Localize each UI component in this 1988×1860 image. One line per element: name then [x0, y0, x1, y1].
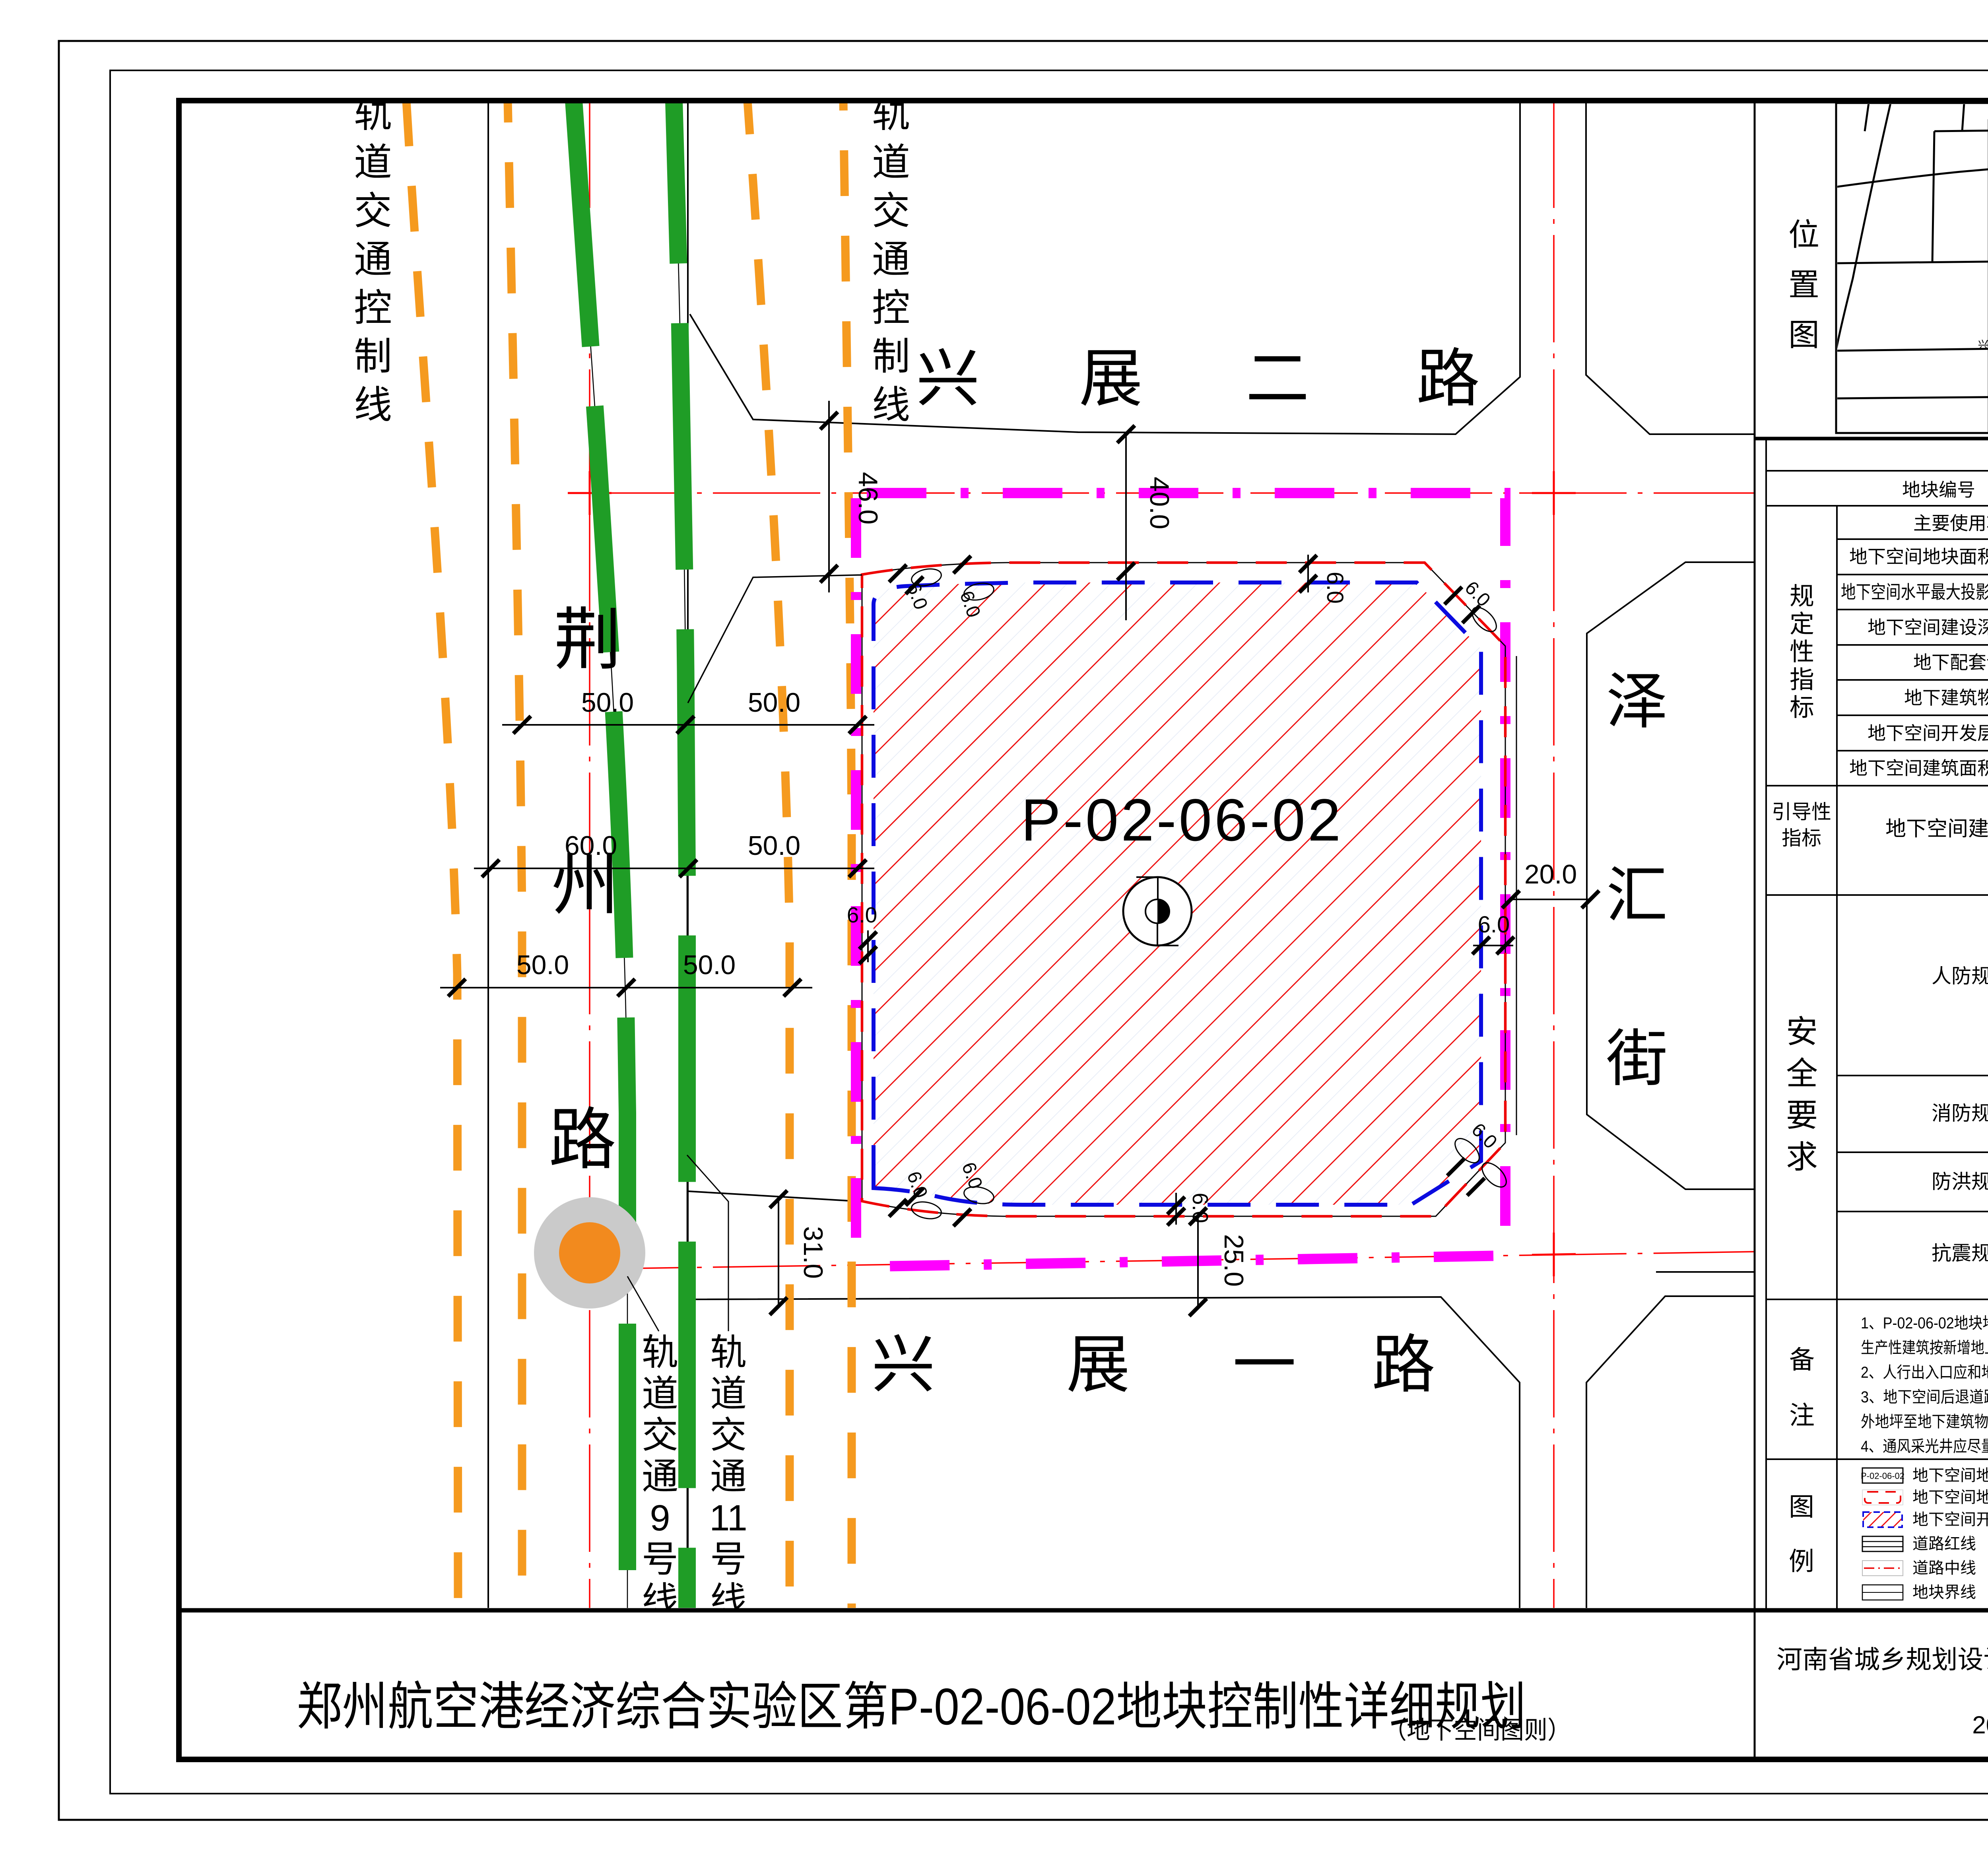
svg-text:40.0: 40.0	[1144, 477, 1175, 529]
svg-text:标: 标	[1790, 694, 1814, 722]
svg-text:60.0: 60.0	[565, 831, 617, 861]
svg-text:制: 制	[872, 336, 910, 378]
svg-text:交: 交	[710, 1415, 747, 1456]
svg-text:路: 路	[1372, 1329, 1435, 1400]
svg-text:通: 通	[642, 1456, 678, 1497]
svg-text:一: 一	[1233, 1329, 1296, 1400]
svg-text:P-02-06-02: P-02-06-02	[1021, 786, 1343, 853]
svg-text:地下建筑物退界: 地下建筑物退界	[1904, 687, 1988, 708]
svg-text:性: 性	[1790, 639, 1814, 666]
svg-text:25.0: 25.0	[1219, 1234, 1249, 1287]
svg-text:位: 位	[1788, 217, 1819, 252]
svg-text:道: 道	[872, 142, 910, 184]
svg-text:道: 道	[710, 1374, 747, 1414]
svg-text:轨: 轨	[710, 1332, 747, 1373]
svg-text:图: 图	[1789, 1493, 1814, 1521]
svg-text:道路中线: 道路中线	[1912, 1559, 1976, 1577]
svg-text:地下空间开发区域: 地下空间开发区域	[1912, 1511, 1988, 1528]
svg-text:通: 通	[710, 1456, 747, 1497]
svg-text:50.0: 50.0	[748, 687, 800, 718]
svg-text:指标: 指标	[1782, 827, 1821, 849]
svg-text:抗震规划: 抗震规划	[1932, 1242, 1988, 1264]
svg-text:（地下空间图则）: （地下空间图则）	[1383, 1717, 1571, 1744]
svg-text:6.0: 6.0	[1478, 912, 1510, 938]
svg-text:荆: 荆	[554, 602, 621, 678]
svg-text:地下空间水平最大投影面积（平方米）: 地下空间水平最大投影面积（平方米）	[1841, 582, 1988, 602]
svg-text:例: 例	[1789, 1547, 1814, 1576]
svg-text:地下空间开发层数（层）: 地下空间开发层数（层）	[1868, 723, 1988, 744]
svg-text:地下配套设施: 地下配套设施	[1913, 652, 1988, 673]
svg-text:防洪规划: 防洪规划	[1932, 1171, 1988, 1193]
svg-text:交: 交	[642, 1415, 678, 1456]
svg-text:道路红线: 道路红线	[1912, 1535, 1976, 1553]
svg-text:制: 制	[354, 336, 392, 378]
svg-text:50.0: 50.0	[683, 950, 736, 980]
svg-text:路: 路	[1416, 343, 1480, 414]
svg-text:4、通风采光井应尽量与地面公共绿地、附属建（构）筑物结合设置: 4、通风采光井应尽量与地面公共绿地、附属建（构）筑物结合设置，周边辅以景观美化。	[1861, 1438, 1988, 1455]
svg-text:交: 交	[354, 190, 392, 233]
svg-text:号: 号	[642, 1539, 678, 1580]
svg-text:求: 求	[1786, 1140, 1818, 1175]
svg-text:汇: 汇	[1606, 861, 1668, 930]
svg-text:兴: 兴	[916, 343, 980, 414]
svg-text:地下空间建设深度（米）: 地下空间建设深度（米）	[1868, 617, 1988, 638]
svg-text:11: 11	[709, 1498, 747, 1538]
svg-text:街: 街	[1606, 1025, 1668, 1093]
svg-text:郑州航空港经济综合实验区第P-02-06-02地块控制性详细: 郑州航空港经济综合实验区第P-02-06-02地块控制性详细规划	[297, 1677, 1526, 1736]
svg-text:46.0: 46.0	[853, 472, 883, 524]
svg-text:地下空间地块范围: 地下空间地块范围	[1912, 1489, 1988, 1506]
svg-text:1、P-02-06-02地块地下空间为结建地下工程，地下空间: 1、P-02-06-02地块地下空间为结建地下工程，地下空间主要使用功能为配建停…	[1861, 1314, 1988, 1332]
svg-text:兴: 兴	[1978, 339, 1988, 351]
svg-text:6.0: 6.0	[1188, 1193, 1213, 1223]
svg-text:控: 控	[354, 287, 392, 330]
svg-text:地块编号: 地块编号	[1902, 480, 1975, 500]
svg-text:外地坪至地下建筑物底板）的0.7倍，有特殊要求的应按相关要求: 外地坪至地下建筑物底板）的0.7倍，有特殊要求的应按相关要求执行。	[1861, 1413, 1988, 1431]
svg-text:展: 展	[1066, 1329, 1130, 1400]
svg-text:线: 线	[354, 384, 392, 427]
svg-text:生产性建筑按新增地上总建筑面积的8%修建防护级别6级以上防空: 生产性建筑按新增地上总建筑面积的8%修建防护级别6级以上防空地下室。	[1861, 1339, 1988, 1357]
svg-text:二: 二	[1246, 343, 1309, 414]
svg-text:置: 置	[1788, 267, 1819, 302]
svg-text:6.0: 6.0	[847, 903, 877, 927]
svg-text:轨: 轨	[642, 1332, 678, 1373]
svg-text:河南省城乡规划设计研究总院股份有限公司: 河南省城乡规划设计研究总院股份有限公司	[1776, 1645, 1988, 1674]
svg-text:道: 道	[354, 142, 392, 184]
svg-text:定: 定	[1790, 611, 1814, 638]
svg-text:通: 通	[872, 239, 910, 281]
svg-text:2、人行出入口应和地上建筑出入口相结合，具体设置应满足相关规: 2、人行出入口应和地上建筑出入口相结合，具体设置应满足相关规范要求。	[1861, 1364, 1988, 1381]
svg-text:指: 指	[1790, 666, 1814, 694]
svg-text:引导性: 引导性	[1772, 801, 1831, 823]
svg-text:50.0: 50.0	[581, 687, 634, 718]
svg-text:道: 道	[642, 1374, 678, 1414]
svg-text:图: 图	[1788, 317, 1819, 352]
svg-text:路: 路	[549, 1102, 616, 1178]
svg-text:注: 注	[1789, 1401, 1815, 1430]
svg-text:线: 线	[872, 384, 910, 427]
svg-text:泽: 泽	[1606, 667, 1668, 736]
svg-text:地下空间建筑面积（平方米）: 地下空间建筑面积（平方米）	[1849, 758, 1988, 779]
svg-text:人防规划: 人防规划	[1932, 965, 1988, 987]
svg-text:3、地下空间后退道路红线边界不应小于6米，同时地下建筑物退界: 3、地下空间后退道路红线边界不应小于6米，同时地下建筑物退界距离不宜小于地下建筑…	[1861, 1388, 1988, 1406]
svg-text:50.0: 50.0	[748, 831, 800, 861]
svg-text:6.0: 6.0	[1322, 572, 1348, 604]
svg-text:要: 要	[1786, 1098, 1818, 1133]
svg-text:兴: 兴	[872, 1329, 935, 1400]
svg-text:控: 控	[872, 287, 910, 330]
svg-text:规: 规	[1790, 583, 1814, 610]
svg-text:2025.11: 2025.11	[1972, 1712, 1988, 1739]
svg-text:全: 全	[1786, 1056, 1818, 1091]
svg-text:P-02-06-02: P-02-06-02	[1861, 1471, 1905, 1481]
svg-text:50.0: 50.0	[516, 950, 569, 980]
svg-text:通: 通	[354, 239, 392, 281]
svg-text:地下空间建设引导: 地下空间建设引导	[1885, 817, 1988, 841]
svg-text:31.0: 31.0	[798, 1226, 828, 1279]
svg-text:地下空间地块面积（平方米）: 地下空间地块面积（平方米）	[1849, 546, 1988, 567]
svg-text:安: 安	[1786, 1014, 1818, 1050]
svg-text:地块界线: 地块界线	[1912, 1584, 1976, 1601]
svg-text:消防规划: 消防规划	[1932, 1102, 1988, 1124]
svg-text:交: 交	[872, 190, 910, 233]
svg-text:9: 9	[650, 1498, 670, 1538]
svg-text:地下空间地块编号: 地下空间地块编号	[1912, 1467, 1988, 1484]
svg-text:展: 展	[1079, 343, 1143, 414]
svg-text:备: 备	[1789, 1345, 1815, 1374]
svg-text:主要使用功能: 主要使用功能	[1913, 513, 1988, 534]
svg-text:20.0: 20.0	[1524, 859, 1577, 889]
svg-text:号: 号	[710, 1539, 747, 1580]
